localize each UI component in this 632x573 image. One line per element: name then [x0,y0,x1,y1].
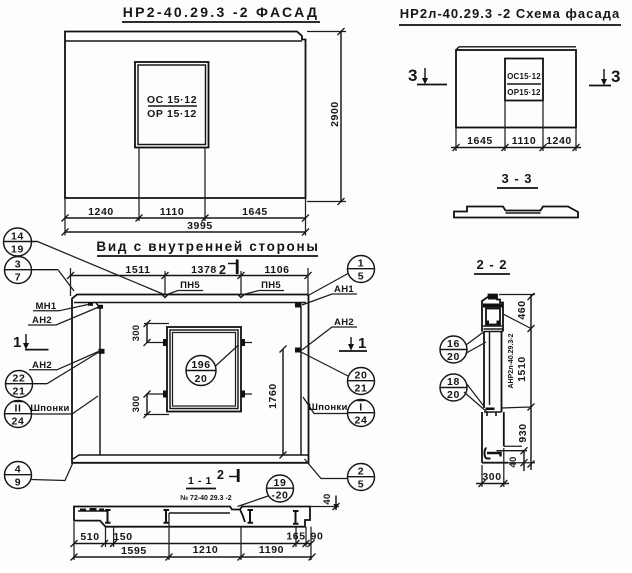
svg-text:3: 3 [15,259,21,271]
svg-text:1240: 1240 [546,135,572,147]
svg-text:АН1: АН1 [334,284,354,295]
svg-text:1: 1 [358,335,366,352]
svg-text:АН2: АН2 [32,315,52,326]
svg-text:40: 40 [508,456,519,467]
svg-text:3: 3 [408,66,417,85]
svg-text:300: 300 [131,325,142,342]
svg-text:1110: 1110 [512,135,537,147]
svg-text:3: 3 [611,67,620,86]
svg-text:2: 2 [358,466,364,478]
svg-text:300: 300 [131,396,142,413]
svg-text:40: 40 [322,493,333,504]
svg-text:-20: -20 [272,490,289,502]
svg-text:Шпонки: Шпонки [308,402,347,413]
svg-text:21: 21 [355,383,368,395]
svg-text:5: 5 [358,479,364,491]
svg-text:1378: 1378 [191,264,217,276]
svg-text:№ 72-40 29.3 -2: № 72-40 29.3 -2 [180,494,231,502]
svg-text:II: II [14,403,21,415]
svg-text:19: 19 [274,477,287,489]
svg-text:24: 24 [12,416,25,428]
svg-text:3995: 3995 [187,220,213,232]
svg-text:1510: 1510 [516,356,528,382]
svg-text:1645: 1645 [242,206,268,218]
svg-text:300: 300 [482,471,501,483]
svg-text:7: 7 [15,272,21,284]
svg-text:24: 24 [355,415,368,427]
svg-text:1190: 1190 [259,544,284,556]
svg-text:22: 22 [13,373,26,385]
svg-text:ОР 15·12: ОР 15·12 [147,108,197,120]
svg-text:510: 510 [80,531,99,543]
svg-text:20: 20 [447,351,460,363]
svg-text:1595: 1595 [121,545,147,557]
svg-text:1760: 1760 [267,383,279,409]
svg-text:150: 150 [113,531,132,543]
svg-text:1: 1 [13,334,21,351]
svg-text:1: 1 [358,258,364,270]
svg-text:21: 21 [13,386,26,398]
svg-text:20: 20 [447,389,460,401]
svg-text:1 - 1: 1 - 1 [188,475,212,487]
svg-text:90: 90 [311,531,324,543]
svg-text:1511: 1511 [125,264,150,276]
svg-text:ПН5: ПН5 [261,280,281,291]
svg-text:НР2-40.29.3 -2 ФАСАД: НР2-40.29.3 -2 ФАСАД [123,4,320,20]
svg-text:20: 20 [355,370,368,382]
svg-text:20: 20 [195,373,208,385]
svg-text:19: 19 [11,244,24,256]
svg-text:ОС15·12: ОС15·12 [507,72,541,81]
svg-text:2: 2 [219,263,226,277]
svg-text:1106: 1106 [264,264,289,276]
svg-text:16: 16 [447,338,460,350]
svg-text:1240: 1240 [88,206,114,218]
svg-text:196: 196 [191,359,210,371]
svg-text:АНР2л-40.29.3-2: АНР2л-40.29.3-2 [508,333,515,388]
svg-text:1110: 1110 [160,206,185,218]
svg-text:165: 165 [286,531,305,543]
svg-text:I: I [359,402,363,414]
svg-text:460: 460 [516,300,528,319]
svg-text:3 - 3: 3 - 3 [501,171,532,186]
svg-text:1210: 1210 [193,544,219,556]
svg-text:4: 4 [15,464,21,476]
svg-text:ОС 15·12: ОС 15·12 [147,94,197,106]
svg-text:АН2: АН2 [334,317,354,328]
svg-text:2900: 2900 [329,101,341,127]
svg-text:ОР15·12: ОР15·12 [507,88,541,97]
svg-text:14: 14 [11,231,24,243]
svg-text:18: 18 [447,376,460,388]
svg-text:1645: 1645 [467,135,493,147]
svg-text:2 - 2: 2 - 2 [476,257,507,272]
svg-text:ПН5: ПН5 [180,280,200,291]
svg-text:Шпонки: Шпонки [30,403,69,414]
svg-text:9: 9 [15,477,21,489]
svg-text:Вид с внутренней стороны: Вид с внутренней стороны [96,239,319,254]
svg-text:НР2л-40.29.3 -2 Схема фасада: НР2л-40.29.3 -2 Схема фасада [400,6,620,21]
svg-text:2: 2 [217,468,224,482]
svg-text:930: 930 [517,423,529,442]
svg-text:5: 5 [358,271,364,283]
